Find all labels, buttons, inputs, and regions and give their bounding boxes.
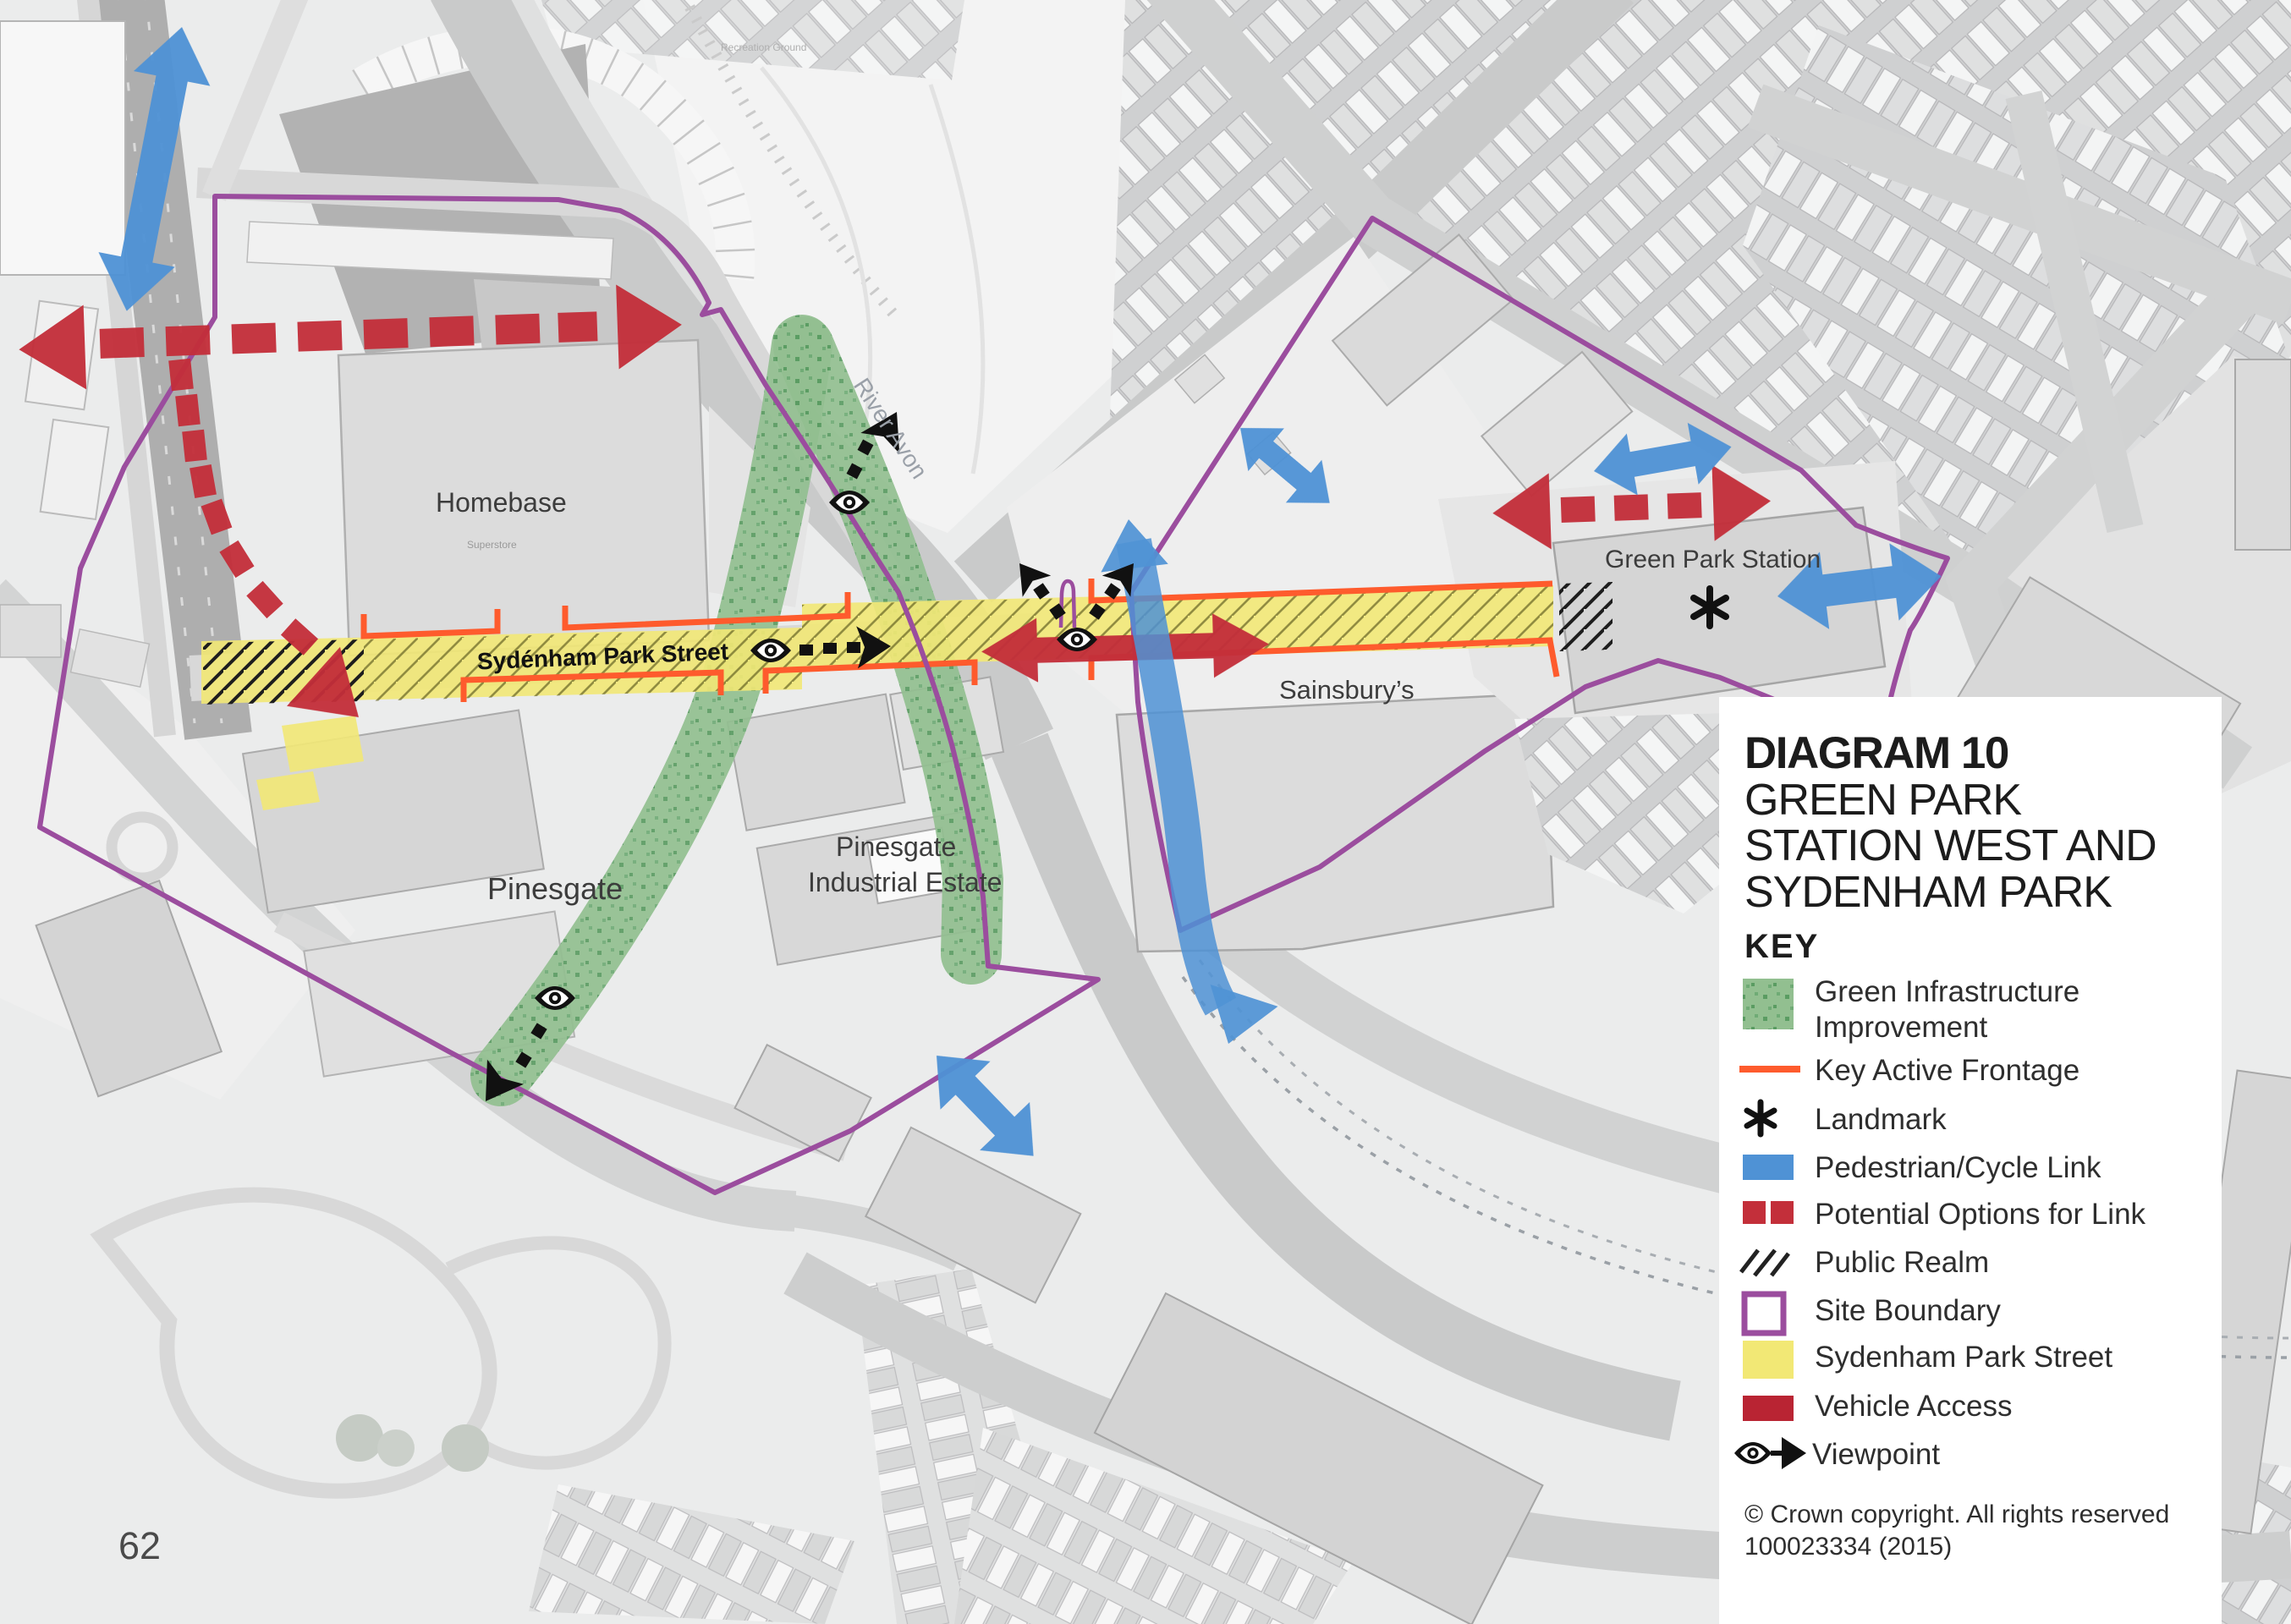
svg-text:Potential Options for Link: Potential Options for Link: [1815, 1198, 2146, 1231]
svg-text:62: 62: [118, 1524, 161, 1567]
svg-text:GREEN PARK: GREEN PARK: [1744, 776, 2022, 825]
svg-text:Recreation Ground: Recreation Ground: [721, 41, 806, 53]
svg-text:Vehicle Access: Vehicle Access: [1815, 1390, 2012, 1423]
svg-text:DIAGRAM 10: DIAGRAM 10: [1744, 728, 2008, 778]
svg-text:Homebase: Homebase: [436, 487, 567, 518]
svg-text:© Crown copyright. All rights: © Crown copyright. All rights reserved: [1744, 1501, 2169, 1528]
svg-text:Pinesgate: Pinesgate: [487, 871, 623, 906]
svg-text:Site Boundary: Site Boundary: [1815, 1294, 2001, 1327]
svg-text:KEY: KEY: [1744, 928, 1819, 965]
svg-text:Superstore: Superstore: [467, 539, 517, 551]
svg-text:SYDENHAM PARK: SYDENHAM PARK: [1744, 868, 2112, 917]
svg-text:Improvement: Improvement: [1815, 1011, 1988, 1044]
svg-text:Pedestrian/Cycle Link: Pedestrian/Cycle Link: [1815, 1151, 2101, 1184]
svg-text:Key Active Frontage: Key Active Frontage: [1815, 1054, 2079, 1087]
svg-text:STATION WEST AND: STATION WEST AND: [1744, 821, 2156, 870]
svg-text:Public Realm: Public Realm: [1815, 1246, 1989, 1279]
svg-text:Industrial Estate: Industrial Estate: [808, 867, 1002, 897]
svg-text:Green Infrastructure: Green Infrastructure: [1815, 975, 2079, 1008]
svg-text:Green Park Station: Green Park Station: [1605, 546, 1821, 573]
svg-text:Sydenham Park Street: Sydenham Park Street: [1815, 1341, 2112, 1374]
svg-text:Landmark: Landmark: [1815, 1103, 1947, 1136]
svg-text:Pinesgate: Pinesgate: [836, 831, 956, 862]
svg-text:100023334 (2015): 100023334 (2015): [1744, 1533, 1952, 1561]
svg-text:Viewpoint: Viewpoint: [1812, 1438, 1940, 1471]
svg-text:Sainsbury’s: Sainsbury’s: [1279, 675, 1415, 705]
